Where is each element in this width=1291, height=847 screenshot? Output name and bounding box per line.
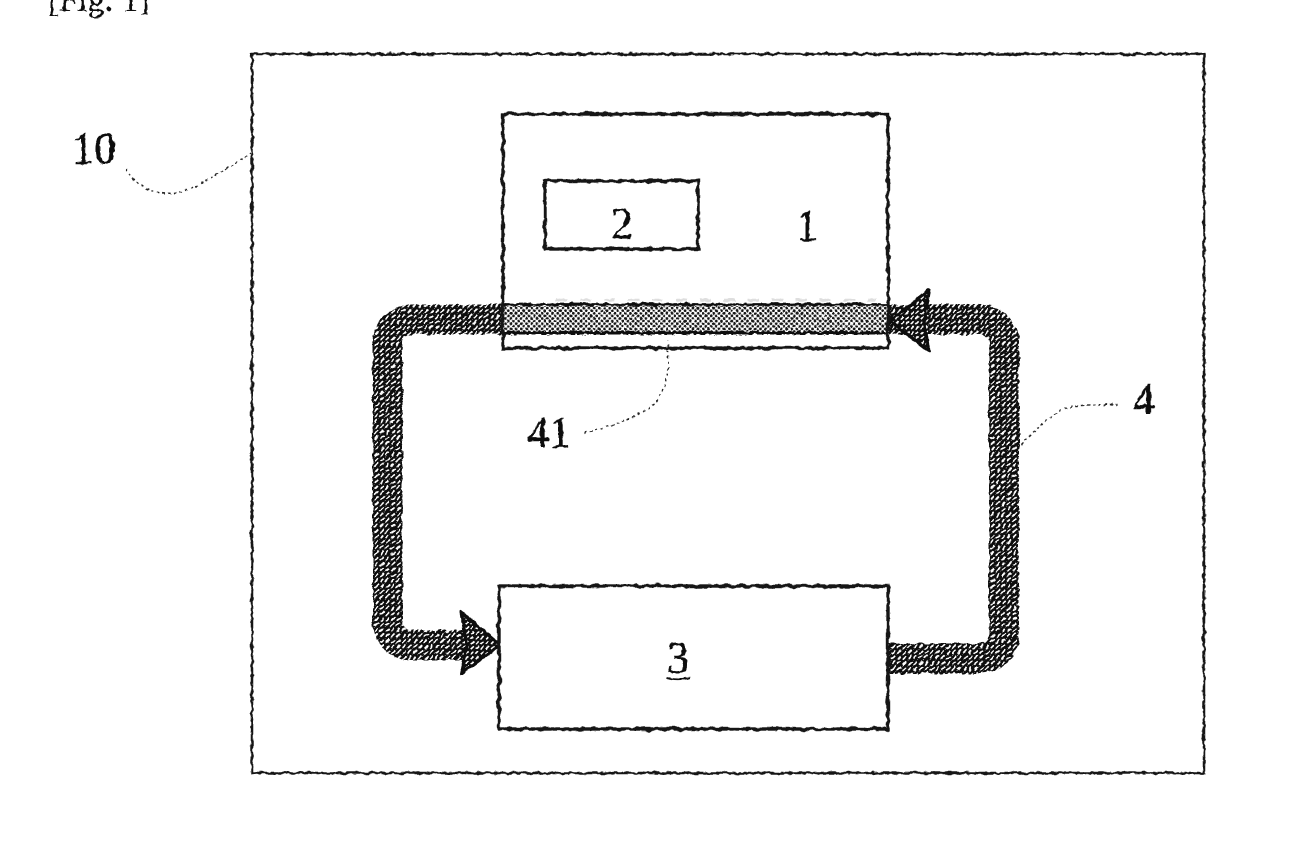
svg-text:2: 2 — [611, 199, 633, 248]
svg-text:3: 3 — [667, 633, 689, 682]
svg-text:[Fig. 1]: [Fig. 1] — [48, 0, 150, 19]
svg-text:1: 1 — [796, 201, 818, 250]
svg-text:10: 10 — [72, 124, 116, 173]
svg-text:41: 41 — [527, 408, 571, 457]
svg-text:4: 4 — [1133, 375, 1155, 424]
